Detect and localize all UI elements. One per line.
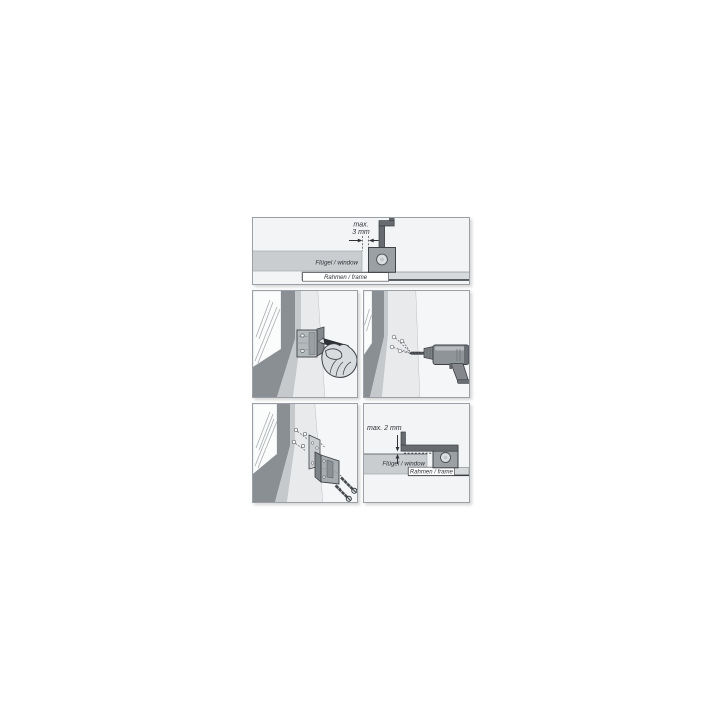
sash-label: Flügel / window: [315, 260, 358, 267]
top-gap-illustration: Flügel / window Rahmen / frame: [364, 404, 469, 502]
frame-label: Rahmen / frame: [410, 470, 454, 476]
drill-holes-illustration: [364, 291, 469, 397]
window-corner-icon: [253, 404, 357, 502]
side-gap-illustration: Flügel / window Rahmen / frame: [253, 218, 469, 284]
measurement-text-line1: max.: [353, 222, 368, 229]
panel-drill-holes: [363, 290, 470, 398]
panel-screw-mounting: [252, 403, 358, 503]
measurement-text-line2: 3 mm: [352, 229, 370, 236]
contact-arm-icon: [401, 432, 458, 451]
window-corner-icon: [364, 291, 469, 397]
hand-icon: [322, 344, 357, 378]
panel-side-gap: Flügel / window Rahmen / frame: [252, 217, 470, 285]
instruction-sheet: Flügel / window Rahmen / frame: [252, 217, 470, 503]
panel-top-gap: Flügel / window Rahmen / frame: [363, 403, 470, 503]
measurement-text: max. 2 mm: [367, 425, 402, 432]
sash-label: Flügel / window: [382, 461, 425, 468]
gap-measurement: max. 3 mm: [349, 222, 379, 252]
panel-mark-holes: [252, 290, 358, 398]
contact-block-icon: [369, 248, 396, 273]
screw-mounting-illustration: [253, 404, 357, 502]
page: Flügel / window Rahmen / frame: [0, 0, 720, 720]
frame-label: Rahmen / frame: [324, 275, 368, 281]
contact-arm-icon: [379, 219, 394, 249]
mark-holes-illustration: [253, 291, 357, 397]
